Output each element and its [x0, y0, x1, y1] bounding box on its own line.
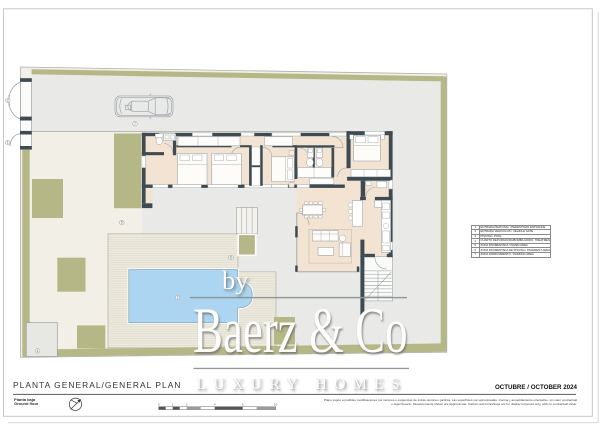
svg-text:10: 10 [274, 402, 278, 406]
svg-text:7: 7 [134, 122, 136, 126]
svg-text:6: 6 [230, 256, 232, 260]
svg-text:0: 0 [158, 402, 160, 406]
svg-text:4: 4 [37, 349, 39, 353]
svg-text:6: 6 [242, 402, 244, 406]
svg-text:2: 2 [7, 99, 9, 103]
svg-text:1: 1 [7, 141, 9, 145]
svg-text:4: 4 [214, 402, 216, 406]
svg-text:1: 1 [172, 402, 174, 406]
svg-text:3: 3 [177, 296, 179, 300]
svg-text:5: 5 [121, 221, 123, 225]
svg-text:2: 2 [186, 402, 188, 406]
